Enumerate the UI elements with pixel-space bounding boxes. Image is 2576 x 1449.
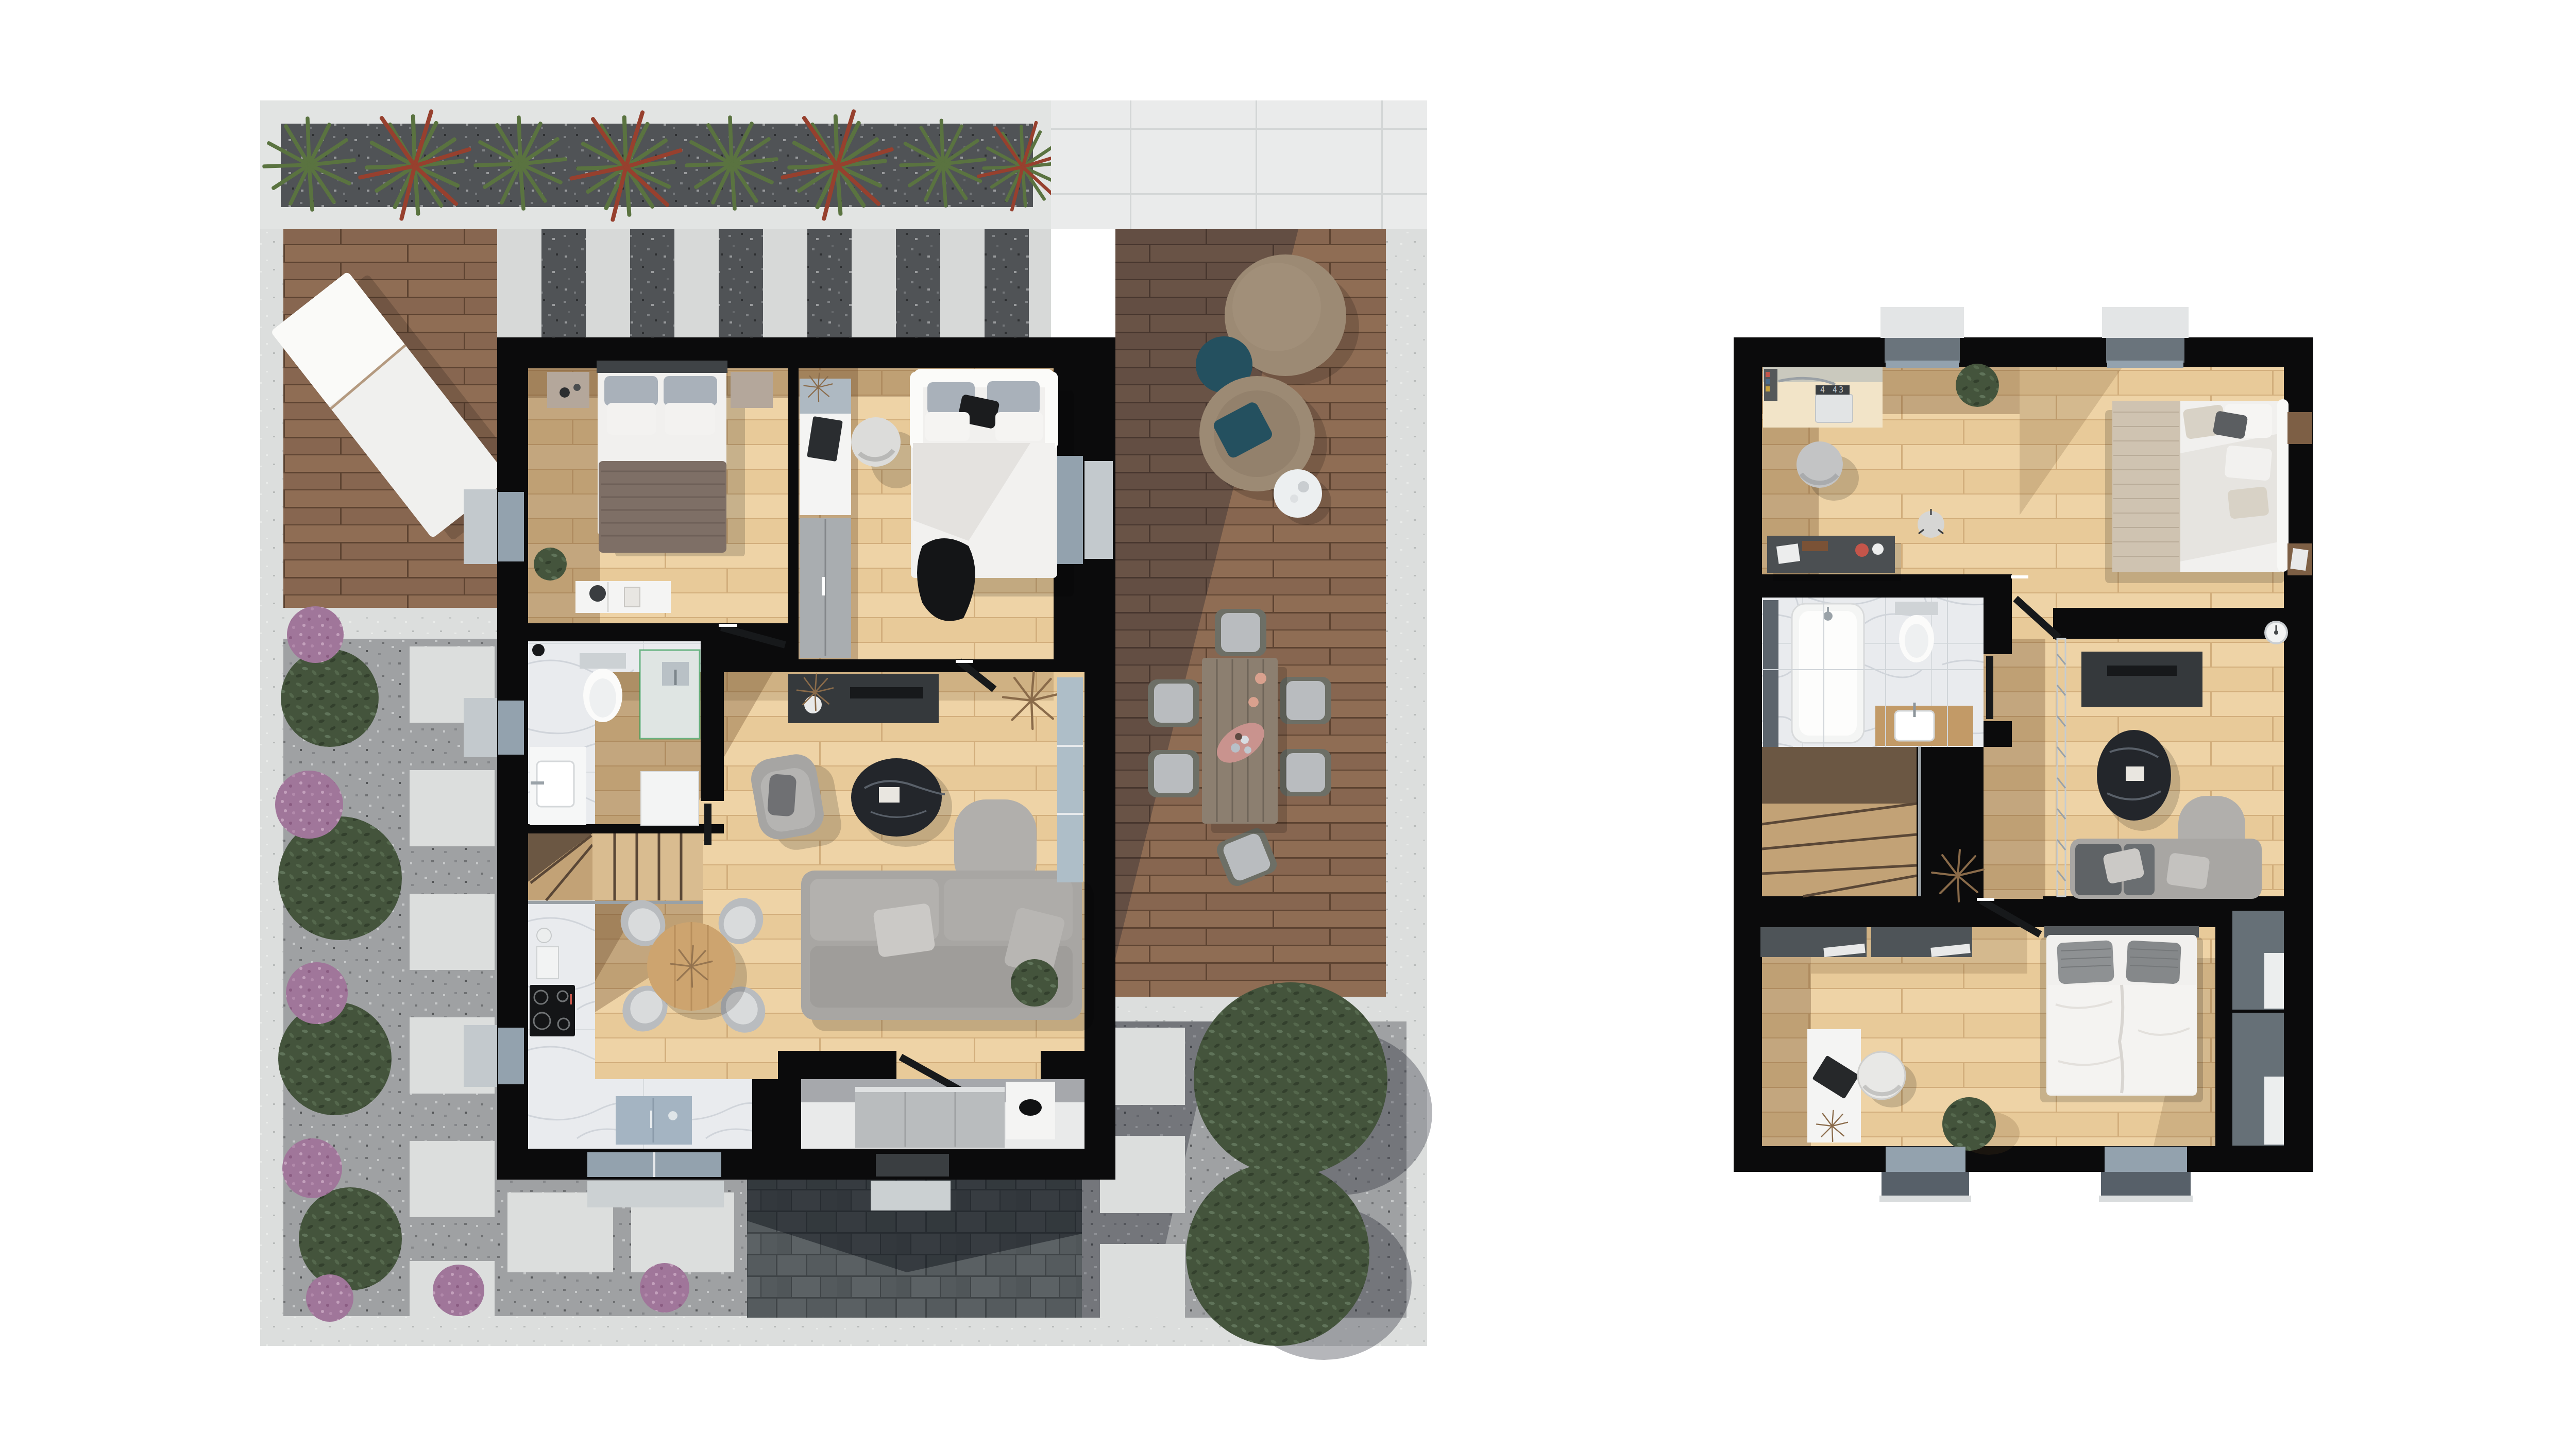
- desk: [1807, 1029, 1861, 1143]
- bedside-shelf: [2287, 412, 2312, 444]
- staircase: [528, 833, 703, 902]
- window-sill: [464, 489, 497, 564]
- paver-stripe-walkway: [497, 229, 1051, 337]
- sphere-lamp: [589, 585, 606, 602]
- window-bay: [2102, 307, 2189, 338]
- tv: [2107, 666, 2177, 676]
- window-sill: [464, 698, 497, 757]
- window: [498, 1028, 524, 1084]
- laptop: [807, 416, 843, 462]
- wood-vanity: [1875, 703, 1973, 746]
- potted-plant: [1956, 364, 1999, 407]
- bath-cabinet: [641, 772, 699, 825]
- window: [1057, 456, 1083, 564]
- window-bay: [2101, 1172, 2191, 1196]
- sink-cabinet: [616, 1096, 692, 1145]
- window: [2105, 1147, 2187, 1172]
- window-sill: [1084, 461, 1113, 559]
- hall-wardrobe: [855, 1087, 1005, 1148]
- hall-console: [1006, 1082, 1055, 1139]
- tv-sideboard: [788, 674, 939, 723]
- terrace-deck: [1115, 229, 1427, 997]
- laptop: [1816, 395, 1853, 422]
- wardrobe: [800, 518, 851, 658]
- vanity-sink: [530, 747, 586, 825]
- potted-plant: [534, 548, 567, 581]
- outdoor-table: [1202, 658, 1278, 824]
- window: [498, 492, 524, 561]
- double-bed: [2105, 399, 2289, 583]
- floorplan-canvas: 4 43: [0, 0, 2576, 1449]
- upper-floor-plan: 4 43: [1734, 307, 2313, 1202]
- front-door: [876, 1154, 949, 1177]
- cooktop: [530, 985, 575, 1036]
- floorplan-rendering: 4 43: [0, 0, 2576, 1449]
- vestibule: [855, 1082, 1055, 1148]
- nightstand-right: [731, 372, 773, 408]
- double-bed: [910, 369, 1074, 621]
- window-bay: [1882, 1172, 1969, 1196]
- tile-patio: [1051, 100, 1427, 229]
- desk: 4 43: [1763, 367, 1883, 428]
- dresser: [575, 581, 671, 613]
- double-bed: [2040, 926, 2203, 1102]
- planter-strip: [260, 100, 1067, 229]
- tv-cabinet: [2081, 652, 2202, 707]
- dining-table: [647, 922, 736, 1011]
- wall-clock: [2265, 622, 2287, 643]
- desk-clock-display: 4 43: [1820, 385, 1845, 395]
- bathtub: [1792, 604, 1864, 743]
- shower: [640, 650, 700, 739]
- window-sill: [464, 1025, 497, 1087]
- house-ground-floor: [464, 337, 1115, 1180]
- bedside-shelf: [2287, 543, 2312, 575]
- entry-step: [871, 1181, 951, 1211]
- window: [498, 701, 524, 755]
- double-bed: [597, 361, 745, 556]
- desk: [800, 373, 851, 516]
- glass-door: [1057, 677, 1083, 882]
- window-bay: [1880, 307, 1964, 338]
- small-plant: [1011, 959, 1058, 1007]
- ground-floor-plan: [260, 100, 1432, 1360]
- tv: [850, 687, 923, 698]
- gravel-garden-right: [1082, 982, 1432, 1360]
- window: [1886, 1147, 1965, 1172]
- dresser: [1767, 536, 1901, 581]
- kitchen-window-step: [587, 1181, 724, 1207]
